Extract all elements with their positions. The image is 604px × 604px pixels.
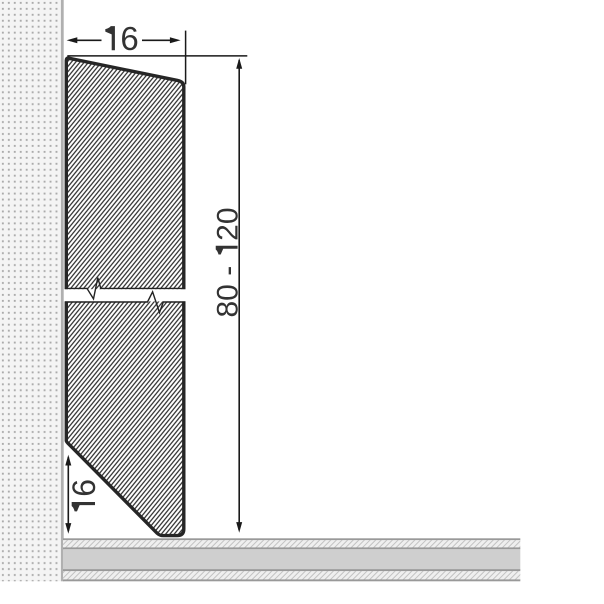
svg-text:20: 20 bbox=[212, 207, 245, 240]
svg-text:80 -: 80 - bbox=[212, 266, 245, 318]
svg-text:6: 6 bbox=[66, 479, 102, 497]
svg-text:6: 6 bbox=[120, 20, 138, 57]
